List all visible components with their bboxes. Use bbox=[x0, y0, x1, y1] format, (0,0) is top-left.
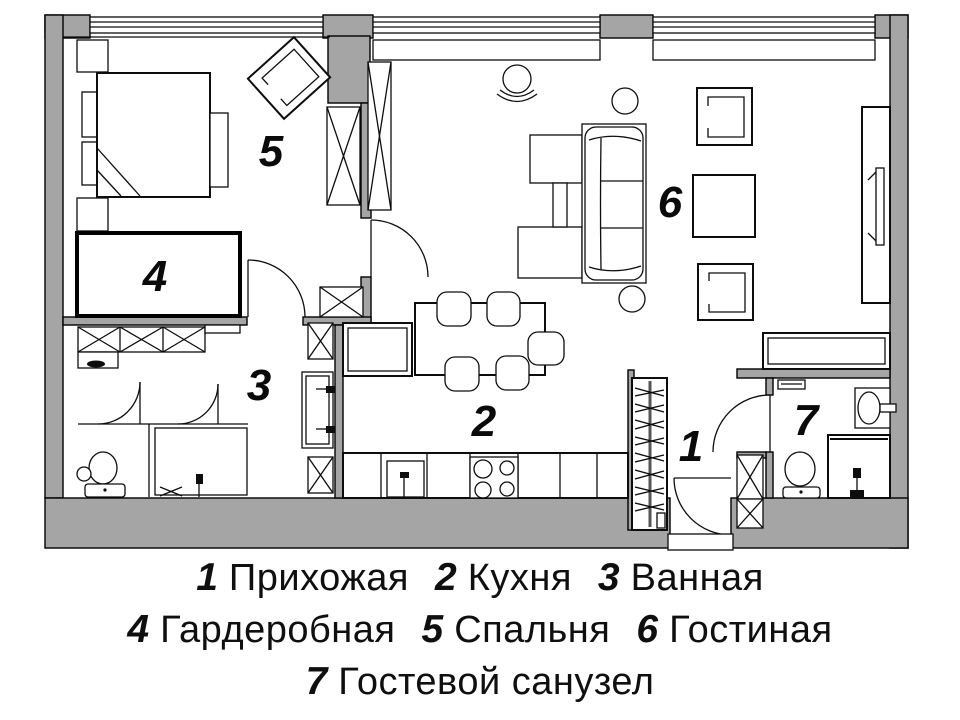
hallway-cabinet-upper bbox=[737, 455, 763, 499]
kitchen-sink bbox=[387, 461, 424, 497]
bathtub bbox=[155, 428, 247, 495]
legend-row-3: 7 Гостевой санузел bbox=[293, 656, 668, 708]
legend-number: 1 bbox=[196, 552, 218, 604]
dining-chair bbox=[445, 357, 479, 391]
legend-row-2: 4 Гардеробная 5 Спальня 6 Гостиная bbox=[114, 604, 845, 656]
bathroom-cabinet-lower bbox=[308, 457, 333, 493]
table-connector bbox=[553, 183, 567, 227]
towel-radiator bbox=[302, 372, 335, 448]
sofa-side-table bbox=[619, 286, 645, 312]
bed-headboard bbox=[210, 113, 228, 187]
sofa bbox=[582, 124, 646, 283]
legend-entry-kitchen: 2 Кухня bbox=[435, 552, 572, 604]
bathroom-washbasin bbox=[78, 352, 118, 368]
room-label-5: 5 bbox=[259, 127, 284, 176]
room-label-4: 4 bbox=[142, 252, 167, 301]
living-room-window-left bbox=[373, 17, 600, 60]
living-room-closet bbox=[763, 333, 890, 369]
legend-label: Спальня bbox=[454, 604, 610, 656]
legend-number: 5 bbox=[421, 604, 443, 656]
bathroom-door bbox=[248, 260, 305, 317]
tv-console bbox=[862, 107, 890, 303]
side-table bbox=[530, 135, 582, 183]
legend-entry-wardrobe: 4 Гардеробная bbox=[127, 604, 395, 656]
room-label-6: 6 bbox=[658, 178, 683, 227]
bathroom-cabinet-upper bbox=[308, 323, 333, 359]
dining-set bbox=[415, 292, 564, 391]
room-label-2: 2 bbox=[471, 397, 497, 446]
legend-label: Гостевой санузел bbox=[338, 656, 654, 708]
bedroom-closet-bottom bbox=[77, 198, 108, 231]
legend-label: Гостиная bbox=[669, 604, 833, 656]
bedroom-armchair bbox=[248, 37, 330, 119]
bathroom-toilet bbox=[77, 452, 125, 497]
legend-number: 7 bbox=[306, 656, 328, 708]
armchair bbox=[697, 88, 752, 145]
fridge bbox=[343, 323, 412, 376]
legend-row-1: 1 Прихожая 2 Кухня 3 Ванная bbox=[183, 552, 777, 604]
room-label-1: 1 bbox=[679, 422, 703, 471]
legend-entry-hallway: 1 Прихожая bbox=[196, 552, 409, 604]
nightstand bbox=[82, 92, 97, 137]
legend-number: 4 bbox=[127, 604, 149, 656]
dining-chair bbox=[487, 292, 520, 326]
shower-doors bbox=[98, 382, 218, 424]
bathroom-fixtures bbox=[77, 323, 335, 497]
living-room-window-right bbox=[653, 17, 875, 60]
legend-entry-bedroom: 5 Спальня bbox=[421, 604, 610, 656]
legend-number: 6 bbox=[636, 604, 658, 656]
bedroom-furniture bbox=[77, 37, 360, 231]
sofa-side-table bbox=[612, 88, 638, 114]
kitchen-tall-cabinet bbox=[368, 62, 391, 210]
windows bbox=[63, 17, 875, 60]
hallway-hanger-wardrobe bbox=[632, 378, 667, 530]
legend-entry-bathroom: 3 Ванная bbox=[598, 552, 764, 604]
stove bbox=[470, 457, 518, 498]
wc-vent bbox=[778, 380, 805, 389]
legend-label: Гардеробная bbox=[160, 604, 395, 656]
room-label-3: 3 bbox=[247, 361, 271, 410]
legend-number: 3 bbox=[598, 552, 620, 604]
wc-shower bbox=[828, 435, 890, 498]
dining-chair bbox=[528, 332, 564, 365]
legend-entry-living-room: 6 Гостиная bbox=[636, 604, 832, 656]
wc-washbasin bbox=[855, 388, 896, 428]
bedroom-window bbox=[63, 17, 330, 37]
guest-wc-door bbox=[713, 395, 770, 452]
floor-plan-drawing: 1 2 3 4 5 6 7 bbox=[0, 0, 960, 555]
nightstand bbox=[82, 142, 97, 185]
legend-number: 2 bbox=[435, 552, 457, 604]
tv bbox=[876, 168, 884, 245]
legend-entry-guest-wc: 7 Гостевой санузел bbox=[306, 656, 655, 708]
bed bbox=[97, 73, 210, 197]
living-room-furniture bbox=[497, 65, 890, 369]
armchair bbox=[698, 264, 753, 320]
room-label-7: 7 bbox=[794, 396, 821, 445]
bathroom-cabinet-row bbox=[78, 325, 240, 352]
bedroom-closet-top bbox=[77, 40, 108, 72]
hallway-cabinet-lower bbox=[737, 499, 763, 528]
bedroom-suite-door bbox=[371, 220, 428, 277]
wc-toilet bbox=[783, 452, 820, 498]
legend-label: Ванная bbox=[631, 552, 764, 604]
legend-label: Прихожая bbox=[229, 552, 409, 604]
legend: 1 Прихожая 2 Кухня 3 Ванная 4 Гардеробна… bbox=[0, 552, 960, 708]
corridor-cabinet bbox=[320, 287, 363, 317]
dining-chair bbox=[496, 356, 529, 390]
coffee-table bbox=[693, 175, 755, 237]
plant bbox=[497, 65, 537, 102]
entrance-door bbox=[668, 478, 733, 550]
legend-label: Кухня bbox=[468, 552, 572, 604]
bedroom-wardrobe bbox=[327, 107, 360, 205]
side-table bbox=[518, 227, 582, 278]
floor-plan-image: 1 2 3 4 5 6 7 1 Прихожая 2 Кухня 3 Ванна… bbox=[0, 0, 960, 720]
dining-chair bbox=[437, 292, 471, 326]
